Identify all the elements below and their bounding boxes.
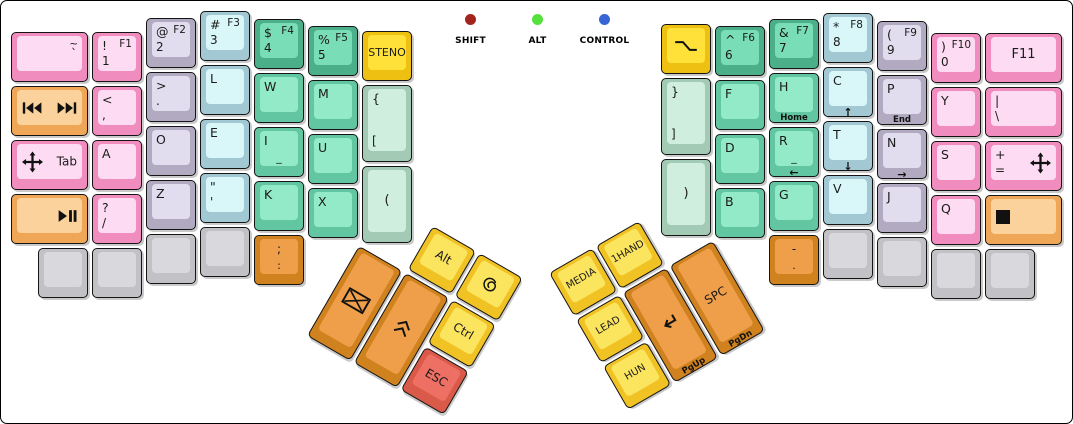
next-track-icon	[56, 100, 77, 115]
key-8-f8: *F88	[823, 13, 873, 63]
key-quote-legend-bl: '	[210, 196, 213, 209]
key-pipe-backslash-legend-tl: |	[995, 94, 999, 107]
key-v-face: V	[829, 179, 867, 214]
key-media-layer-legend-ctr: MEDIA	[565, 266, 598, 291]
key-comma: <,	[92, 86, 142, 136]
key-8-f8-legend-tl: *	[833, 20, 839, 33]
key-s-face: S	[937, 145, 975, 180]
envelope-icon	[339, 284, 373, 316]
key-hun-legend-ctr: HUN	[623, 363, 648, 383]
key-f-legend-tl: F	[725, 87, 732, 100]
key-f11: F11	[985, 33, 1062, 83]
key-k: K	[254, 181, 304, 231]
key-i-face: I_	[260, 131, 298, 166]
key-1hand-face: 1HAND	[603, 227, 653, 276]
key-j-legend-tl: J	[887, 190, 891, 203]
move-icon	[22, 151, 43, 172]
key-1-f1-face: !F11	[98, 36, 136, 71]
key-3-f3: #F33	[200, 11, 250, 61]
key-a-legend-tl: A	[102, 147, 111, 160]
key-dash-period-face: -.	[775, 239, 813, 274]
key-x-face: X	[314, 192, 352, 227]
key-y-face: Y	[937, 91, 975, 126]
key-media-prev-next	[11, 86, 88, 136]
key-quote-face: "'	[206, 177, 244, 212]
key-tab-move-legend-mr: Tab	[57, 155, 77, 168]
key-t-down-face: T	[829, 125, 867, 160]
key-quote-legend-tl: "	[210, 180, 216, 193]
key-i-legend-tl: I	[264, 134, 268, 147]
key-swirl-face	[465, 259, 515, 308]
key-blank-l1	[38, 248, 88, 298]
key-t-down: T↓	[823, 121, 873, 171]
key-option-face	[667, 28, 705, 63]
key-r-left-legend-tl: R	[779, 134, 788, 147]
key-quote: "'	[200, 173, 250, 223]
play-pause-icon	[57, 208, 77, 223]
key-o-legend-tl: O	[156, 133, 166, 146]
key-plus-equals-move-face: +=	[991, 145, 1056, 180]
key-a-face: A	[98, 144, 136, 179]
key-blank-l3	[146, 234, 196, 284]
key-question-slash: ?/	[92, 194, 142, 244]
key-media-layer-face: MEDIA	[556, 254, 606, 303]
key-comma-legend-bl: ,	[102, 109, 106, 122]
key-m-face: M	[314, 84, 352, 119]
key-rbrace-rbracket-face: }]	[667, 82, 705, 144]
key-ctrl-face: Ctrl	[438, 306, 488, 355]
key-period-legend-tl: >	[156, 79, 166, 92]
key-f11-face: F11	[991, 37, 1056, 72]
key-stop	[985, 195, 1062, 245]
option-icon	[673, 37, 700, 54]
key-lbrace-lbracket-legend-tl: {	[372, 92, 380, 105]
key-s: S	[931, 141, 981, 191]
key-2-f2: @F22	[146, 18, 196, 68]
key-f-face: F	[721, 84, 759, 119]
key-n-right-legend-tl: N	[887, 136, 896, 149]
key-semicolon-colon: ;:	[254, 235, 304, 285]
key-b-face: B	[721, 192, 759, 227]
key-l: L	[200, 65, 250, 115]
key-2-f2-legend-tl: @	[156, 25, 169, 38]
key-3-f3-legend-bl: 3	[210, 34, 218, 47]
key-g: G	[769, 181, 819, 231]
key-i: I_	[254, 127, 304, 177]
key-play-pause-face	[17, 198, 82, 233]
key-q: Q	[931, 195, 981, 245]
key-f: F	[715, 80, 765, 130]
key-semicolon-colon-face: ;:	[260, 239, 298, 274]
key-tab-move-face: Tab	[17, 144, 82, 179]
key-pipe-backslash-legend-bl: \	[995, 110, 999, 123]
key-r-left-front-legend: ←	[770, 168, 818, 177]
prev-track-icon	[22, 100, 43, 115]
key-n-right-face: N	[883, 133, 921, 168]
key-g-face: G	[775, 185, 813, 220]
key-1-f1: !F11	[92, 32, 142, 82]
key-lead-legend-ctr: LEAD	[594, 315, 622, 337]
key-j: J	[877, 183, 927, 233]
key-6-f6-legend-bl: 6	[725, 49, 733, 62]
key-z: Z	[146, 180, 196, 230]
key-lbrace-lbracket: {[	[362, 85, 412, 162]
key-rparen-legend-ctr: )	[683, 187, 688, 201]
key-w: W	[254, 73, 304, 123]
key-0-f10-face: )F100	[937, 37, 975, 72]
key-alt-legend-ctr: Alt	[433, 248, 453, 267]
key-j-face: J	[883, 187, 921, 222]
key-d-legend-tl: D	[725, 141, 735, 154]
key-d: D	[715, 134, 765, 184]
key-v-legend-tl: V	[833, 182, 842, 195]
key-blank-l4-face	[206, 231, 244, 266]
key-plus-equals-move: +=	[985, 141, 1062, 191]
key-comma-face: <,	[98, 90, 136, 125]
key-0-f10-legend-tl: )	[941, 40, 946, 53]
swirl-icon	[475, 269, 505, 299]
key-1-f1-legend-tl: !	[102, 39, 107, 52]
key-9-f9-legend-tl: (	[887, 28, 892, 41]
key-p-end: PEnd	[877, 75, 927, 125]
key-q-legend-tl: Q	[941, 202, 951, 215]
key-blank-r4	[985, 249, 1035, 299]
key-4-f4-legend-tl: $	[264, 26, 272, 39]
key-y: Y	[931, 87, 981, 137]
key-lbrace-lbracket-legend-bl: [	[372, 135, 377, 148]
key-3-f3-legend-tr: F3	[227, 18, 240, 29]
key-p-end-legend-tl: P	[887, 82, 895, 95]
key-esc-legend-ctr: ESC	[423, 366, 450, 389]
key-i-legend-bc: _	[276, 152, 282, 164]
key-grave-tilde-face: ~`	[17, 36, 82, 71]
key-hun-face: HUN	[610, 348, 660, 397]
key-dash-period-legend-tc: -	[792, 243, 796, 256]
key-4-f4-face: $F44	[260, 23, 298, 58]
key-m-legend-tl: M	[318, 87, 329, 100]
key-lparen-face: (	[368, 170, 406, 232]
key-media-prev-next-face	[17, 90, 82, 125]
key-1hand-legend-ctr: 1HAND	[610, 239, 646, 266]
key-2-f2-legend-tr: F2	[173, 25, 186, 36]
key-lbrace-lbracket-face: {[	[368, 89, 406, 151]
key-blank-r2	[877, 237, 927, 287]
key-p-end-face: P	[883, 79, 921, 114]
control-indicator: CONTROL	[571, 14, 638, 46]
key-r-left: R_←	[769, 127, 819, 177]
key-w-legend-tl: W	[264, 80, 276, 93]
key-steno: STENO	[362, 31, 412, 81]
key-m: M	[308, 80, 358, 130]
key-stop-face	[991, 199, 1056, 234]
key-rparen-face: )	[667, 163, 705, 225]
key-t-down-legend-tl: T	[833, 128, 841, 141]
key-9-f9-legend-tr: F9	[904, 28, 917, 39]
key-n-right-front-legend: →	[878, 170, 926, 179]
key-pipe-backslash: |\	[985, 87, 1062, 137]
key-c-up-front-legend: ↑	[824, 108, 872, 117]
key-blank-l3-face	[152, 238, 190, 273]
stop-icon	[996, 210, 1010, 224]
key-rparen: )	[661, 159, 711, 236]
key-6-f6-face: ^F66	[721, 30, 759, 65]
key-grave-tilde: ~`	[11, 32, 88, 82]
key-b: B	[715, 188, 765, 238]
key-period: >.	[146, 72, 196, 122]
key-3-f3-legend-tl: #	[210, 18, 220, 31]
key-blank-r1-face	[829, 233, 867, 268]
key-x-legend-tl: X	[318, 195, 327, 208]
key-blank-r1	[823, 229, 873, 279]
key-u-legend-tl: U	[318, 141, 327, 154]
chevrons-up-icon	[389, 314, 418, 341]
key-n-right: N→	[877, 129, 927, 179]
key-b-legend-tl: B	[725, 195, 734, 208]
key-rbrace-rbracket: }]	[661, 78, 711, 155]
key-alt-face: Alt	[418, 232, 468, 281]
key-rbrace-rbracket-legend-bl: ]	[671, 128, 676, 141]
key-play-pause	[11, 194, 88, 244]
key-q-face: Q	[937, 199, 975, 234]
keyboard-layout-canvas: SHIFT ALT CONTROL ~`!F11@F22#F33$F44%F55…	[0, 0, 1073, 424]
key-blank-r4-face	[991, 253, 1029, 288]
key-l-legend-tl: L	[210, 72, 217, 85]
key-e: E	[200, 119, 250, 169]
alt-indicator: ALT	[504, 14, 571, 46]
key-f11-legend-ctr: F11	[1011, 48, 1035, 62]
key-5-f5: %F55	[308, 26, 358, 76]
key-g-legend-tl: G	[779, 188, 789, 201]
key-h-home: HHome	[769, 73, 819, 123]
key-blank-l4	[200, 227, 250, 277]
shift-indicator: SHIFT	[437, 14, 504, 46]
key-o: O	[146, 126, 196, 176]
key-r-left-legend-bc: _	[791, 152, 797, 164]
key-question-slash-legend-tl: ?	[102, 201, 109, 214]
key-3-f3-face: #F33	[206, 15, 244, 50]
key-h-home-face: H	[775, 77, 813, 112]
key-dash-period: -.	[769, 235, 819, 285]
key-s-legend-tl: S	[941, 148, 949, 161]
key-blank-r2-face	[883, 241, 921, 276]
shift-led-label: SHIFT	[455, 36, 486, 46]
key-t-down-front-legend: ↓	[824, 162, 872, 171]
key-4-f4: $F44	[254, 19, 304, 69]
key-dash-period-legend-bc: .	[792, 260, 796, 272]
key-9-f9-legend-bl: 9	[887, 44, 895, 57]
modifier-indicators: SHIFT ALT CONTROL	[437, 14, 638, 46]
key-ctrl-legend-ctr: Ctrl	[451, 320, 476, 342]
key-5-f5-face: %F55	[314, 30, 352, 65]
key-steno-face: STENO	[368, 35, 406, 70]
key-l-face: L	[206, 69, 244, 104]
key-6-f6-legend-tr: F6	[742, 33, 755, 44]
key-lparen-legend-ctr: (	[384, 194, 389, 208]
key-u: U	[308, 134, 358, 184]
key-question-slash-face: ?/	[98, 198, 136, 233]
key-7-f7-face: &F77	[775, 23, 813, 58]
shift-led	[465, 14, 476, 25]
key-blank-r3-face	[937, 253, 975, 288]
key-0-f10-legend-tr: F10	[952, 40, 971, 51]
key-c-up-legend-tl: C	[833, 74, 842, 87]
key-0-f10: )F100	[931, 33, 981, 83]
key-9-f9-face: (F99	[883, 25, 921, 60]
key-r-left-face: R_	[775, 131, 813, 166]
key-7-f7-legend-tl: &	[779, 26, 789, 39]
key-e-face: E	[206, 123, 244, 158]
alt-led	[532, 14, 543, 25]
key-d-face: D	[721, 138, 759, 173]
key-1-f1-legend-bl: 1	[102, 55, 110, 68]
key-v: V	[823, 175, 873, 225]
key-blank-l2	[92, 248, 142, 298]
key-e-legend-tl: E	[210, 126, 218, 139]
key-period-legend-bl: .	[156, 95, 160, 108]
key-esc-face: ESC	[411, 353, 461, 402]
key-9-f9: (F99	[877, 21, 927, 71]
enter-icon	[652, 305, 686, 339]
key-c-up: C↑	[823, 67, 873, 117]
control-led	[599, 14, 610, 25]
key-k-legend-tl: K	[264, 188, 272, 201]
key-blank-r3	[931, 249, 981, 299]
key-z-face: Z	[152, 184, 190, 219]
key-w-face: W	[260, 77, 298, 112]
key-5-f5-legend-tr: F5	[335, 33, 348, 44]
key-7-f7-legend-tr: F7	[796, 26, 809, 37]
key-semicolon-colon-legend-tc: ;	[277, 243, 281, 256]
key-steno-legend-ctr: STENO	[368, 47, 406, 59]
key-plus-equals-move-legend-tl: +	[995, 148, 1005, 161]
key-a: A	[92, 140, 142, 190]
key-h-home-front-legend: Home	[770, 113, 818, 123]
control-led-label: CONTROL	[580, 36, 630, 46]
key-0-f10-legend-bl: 0	[941, 56, 949, 69]
key-lparen: (	[362, 166, 412, 243]
key-rbrace-rbracket-legend-tl: }	[671, 85, 679, 98]
key-pipe-backslash-face: |\	[991, 91, 1056, 126]
key-2-f2-legend-bl: 2	[156, 41, 164, 54]
key-tab-move: Tab	[11, 140, 88, 190]
key-p-end-front-legend: End	[878, 115, 926, 125]
key-blank-l1-face	[44, 252, 82, 287]
key-1-f1-legend-tr: F1	[119, 39, 132, 50]
key-o-face: O	[152, 130, 190, 165]
key-7-f7: &F77	[769, 19, 819, 69]
key-y-legend-tl: Y	[941, 94, 949, 107]
key-x: X	[308, 188, 358, 238]
key-8-f8-legend-bl: 8	[833, 36, 841, 49]
key-z-legend-tl: Z	[156, 187, 165, 200]
key-u-face: U	[314, 138, 352, 173]
key-h-home-legend-tl: H	[779, 80, 788, 93]
key-8-f8-face: *F88	[829, 17, 867, 52]
key-4-f4-legend-tr: F4	[281, 26, 294, 37]
key-option	[661, 24, 711, 74]
key-k-face: K	[260, 185, 298, 220]
key-plus-equals-move-legend-bl: =	[995, 164, 1005, 177]
key-5-f5-legend-bl: 5	[318, 49, 326, 62]
key-blank-l2-face	[98, 252, 136, 287]
key-semicolon-colon-legend-bc: :	[277, 260, 281, 272]
key-6-f6-legend-tl: ^	[725, 33, 735, 46]
key-grave-tilde-legend-mr: `	[71, 47, 77, 60]
key-8-f8-legend-tr: F8	[850, 20, 863, 31]
key-spc-pgdn-legend-ctr: SPC	[702, 284, 728, 307]
key-c-up-face: C	[829, 71, 867, 106]
alt-led-label: ALT	[529, 36, 547, 46]
key-lead-face: LEAD	[583, 301, 633, 350]
key-6-f6: ^F66	[715, 26, 765, 76]
key-7-f7-legend-bl: 7	[779, 42, 787, 55]
key-question-slash-legend-bl: /	[102, 217, 106, 230]
key-comma-legend-tl: <	[102, 93, 112, 106]
key-5-f5-legend-tl: %	[318, 33, 330, 46]
key-4-f4-legend-bl: 4	[264, 42, 272, 55]
key-2-f2-face: @F22	[152, 22, 190, 57]
key-period-face: >.	[152, 76, 190, 111]
move-icon	[1030, 152, 1051, 173]
